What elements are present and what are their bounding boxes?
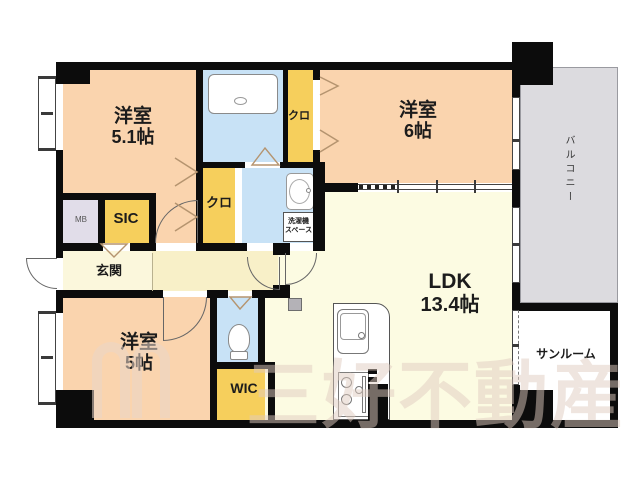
bedroom-b-name: 洋室	[368, 100, 468, 121]
floorplan: 洗濯機 スペース 洋室 5.1帖 洋室 6帖 洋室 5帖 LDK 13.4帖 玄…	[0, 0, 640, 480]
closet-top-label: クロ	[284, 110, 314, 122]
watermark-text: 三好不動産	[246, 336, 626, 443]
ldk-size: 13.4帖	[395, 294, 505, 316]
watermark-logo	[92, 334, 188, 422]
bedroom-b-label: 洋室 6帖	[368, 100, 468, 141]
bedroom-a-name: 洋室	[83, 106, 183, 127]
balcony-label: バルコニー	[561, 135, 576, 240]
watermark-arch-icon	[92, 342, 130, 418]
ldk-label: LDK 13.4帖	[395, 270, 505, 316]
fold-door-icon	[230, 297, 251, 309]
closet-mid-label: クロ	[201, 196, 237, 211]
ldk-name: LDK	[395, 270, 505, 294]
bedroom-a-label: 洋室 5.1帖	[83, 106, 183, 147]
fold-door-icon	[101, 244, 127, 257]
entrance-label: 玄関	[79, 264, 139, 279]
bedroom-a-size: 5.1帖	[83, 127, 183, 147]
shoe-closet-label: SIC	[101, 211, 151, 228]
bifold-door-icon	[320, 77, 338, 152]
bifold-door-icon	[175, 158, 197, 231]
meter-box-label: MB	[66, 216, 96, 225]
watermark-arch-icon	[132, 342, 170, 418]
fold-door-icon	[252, 148, 279, 165]
bedroom-b-size: 6帖	[368, 121, 468, 141]
